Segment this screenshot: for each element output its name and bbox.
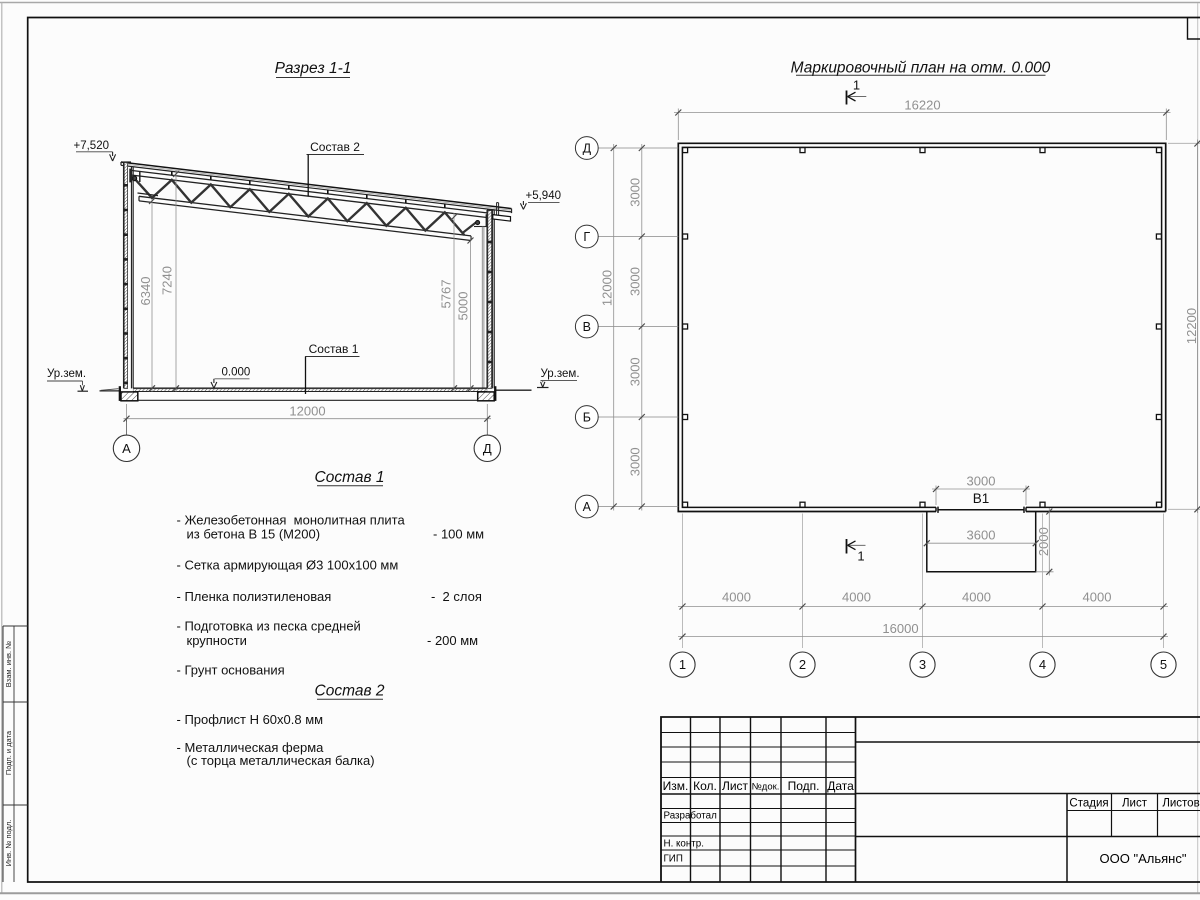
svg-text:- Подготовка из песка средней: - Подготовка из песка средней: [177, 619, 361, 634]
svg-text:1: 1: [857, 549, 864, 564]
svg-text:+7,520: +7,520: [74, 140, 110, 152]
svg-text:Б: Б: [583, 410, 591, 424]
svg-text:Изм.: Изм.: [663, 779, 689, 793]
svg-text:Ур.зем.: Ур.зем.: [47, 368, 86, 380]
svg-text:- Железобетонная монолитная п: - Железобетонная монолитная плита: [177, 513, 406, 528]
svg-text:А: А: [583, 500, 592, 514]
svg-text:А: А: [122, 441, 131, 456]
svg-text:3000: 3000: [628, 178, 643, 207]
svg-text:4000: 4000: [962, 590, 991, 605]
svg-text:Подп. и дата: Подп. и дата: [4, 730, 13, 775]
svg-text:2: 2: [799, 657, 806, 672]
svg-text:Состав 2: Состав 2: [310, 140, 360, 154]
svg-text:В: В: [583, 320, 591, 334]
svg-text:3: 3: [919, 657, 926, 672]
svg-text:Ур.зем.: Ур.зем.: [541, 368, 580, 380]
svg-text:16220: 16220: [904, 98, 940, 113]
svg-text:- 200 мм: - 200 мм: [427, 633, 478, 648]
svg-text:- 2 слоя: - 2 слоя: [431, 589, 482, 604]
svg-text:4000: 4000: [842, 590, 871, 605]
svg-text:Стадия: Стадия: [1069, 798, 1108, 810]
svg-text:из бетона В 15 (М200): из бетона В 15 (М200): [187, 527, 321, 542]
svg-text:12000: 12000: [289, 404, 325, 419]
svg-text:Маркировочный план на отм. 0.0: Маркировочный план на отм. 0.000: [791, 60, 1051, 77]
svg-text:Состав 1: Состав 1: [309, 342, 359, 356]
svg-text:крупности: крупности: [187, 633, 247, 648]
svg-text:4000: 4000: [1083, 590, 1112, 605]
svg-text:(с торца металлическая балка): (с торца металлическая балка): [187, 753, 375, 768]
svg-text:1: 1: [853, 78, 860, 93]
svg-text:5: 5: [1160, 657, 1167, 672]
svg-text:3000: 3000: [967, 474, 996, 489]
svg-text:Разрез 1-1: Разрез 1-1: [275, 60, 352, 77]
svg-text:№док.: №док.: [752, 782, 780, 793]
svg-text:Подп.: Подп.: [788, 779, 820, 793]
svg-text:6340: 6340: [138, 277, 153, 306]
svg-text:Кол.: Кол.: [693, 779, 717, 793]
svg-text:Лист: Лист: [722, 779, 749, 793]
svg-text:Инв. № подл.: Инв. № подл.: [4, 820, 13, 867]
svg-text:- Профлист Н 60х0.8 мм: - Профлист Н 60х0.8 мм: [177, 712, 324, 727]
svg-text:ООО "Альянс": ООО "Альянс": [1100, 851, 1187, 866]
svg-text:12000: 12000: [600, 270, 615, 306]
svg-text:4000: 4000: [722, 590, 751, 605]
svg-text:+5,940: +5,940: [526, 190, 562, 202]
svg-text:ГИП: ГИП: [664, 854, 683, 865]
svg-text:12200: 12200: [1184, 308, 1199, 344]
svg-text:4: 4: [1039, 657, 1046, 672]
svg-text:Состав 2: Состав 2: [315, 683, 385, 700]
svg-text:Дата: Дата: [827, 779, 854, 793]
svg-text:16000: 16000: [882, 621, 918, 636]
svg-text:7240: 7240: [160, 266, 175, 295]
svg-text:- Пленка полиэтиленовая: - Пленка полиэтиленовая: [177, 589, 332, 604]
svg-text:1: 1: [679, 657, 686, 672]
svg-text:Лист: Лист: [1122, 798, 1148, 810]
svg-text:- Сетка армирующая Ø3 100х100: - Сетка армирующая Ø3 100х100 мм: [177, 558, 399, 573]
svg-text:5767: 5767: [439, 280, 454, 309]
svg-text:2000: 2000: [1036, 527, 1051, 556]
svg-text:3000: 3000: [628, 267, 643, 296]
svg-text:Д: Д: [583, 141, 592, 155]
svg-text:5000: 5000: [456, 292, 471, 321]
svg-text:3600: 3600: [967, 528, 996, 543]
svg-text:0.000: 0.000: [222, 367, 251, 379]
svg-text:В1: В1: [973, 491, 990, 506]
svg-text:Д: Д: [483, 441, 492, 456]
svg-text:Листов: Листов: [1162, 798, 1199, 810]
svg-text:Разработал: Разработал: [664, 811, 718, 822]
svg-text:Состав 1: Состав 1: [315, 469, 385, 486]
svg-text:- Грунт основания: - Грунт основания: [177, 663, 285, 678]
svg-text:3000: 3000: [628, 357, 643, 386]
svg-text:Взам. инв. №: Взам. инв. №: [4, 641, 13, 687]
svg-text:Г: Г: [583, 230, 590, 244]
svg-text:- 100 мм: - 100 мм: [433, 527, 484, 542]
svg-text:3000: 3000: [628, 447, 643, 476]
svg-text:Н. контр.: Н. контр.: [664, 839, 704, 850]
